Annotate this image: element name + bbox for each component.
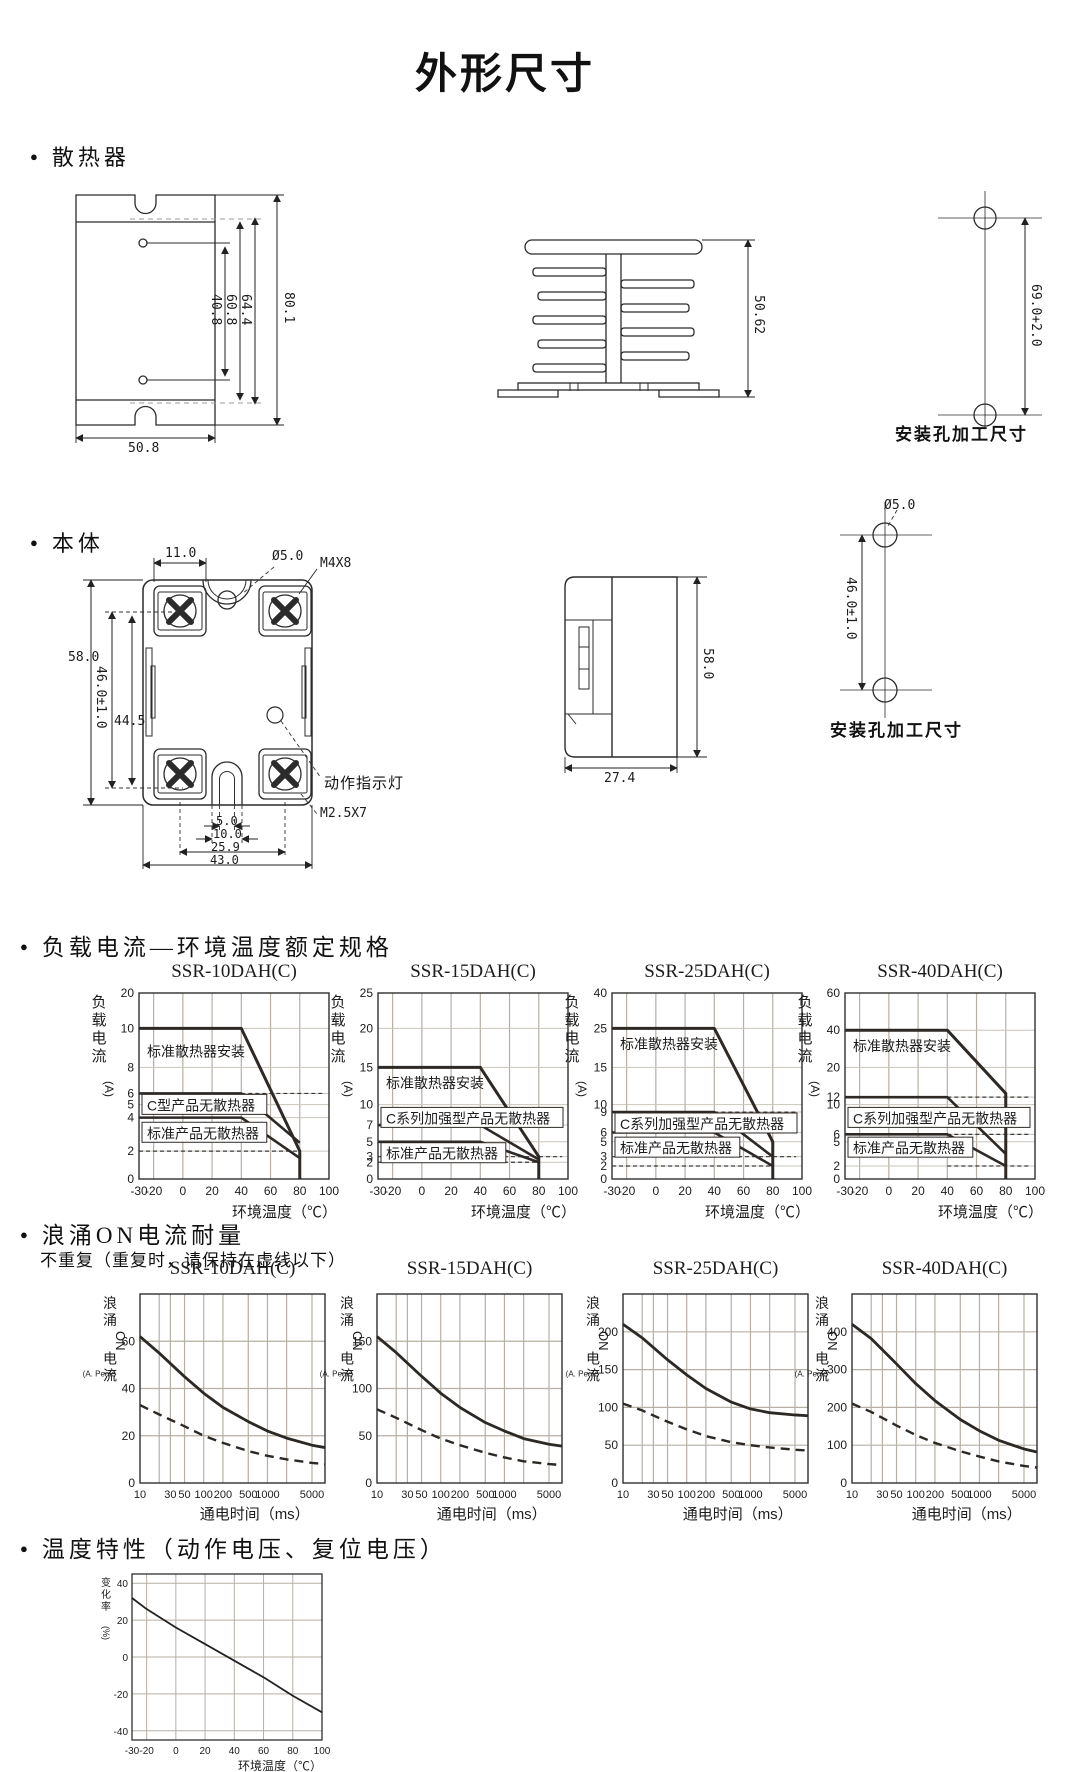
svg-text:SSR-10DAH(C): SSR-10DAH(C) xyxy=(170,1258,296,1279)
dim-body-height: 58.0 xyxy=(68,650,99,665)
svg-text:C系列加强型产品无散热器: C系列加强型产品无散热器 xyxy=(620,1116,784,1132)
svg-text:(A. Peak): (A. Peak) xyxy=(320,1369,354,1378)
svg-text:2: 2 xyxy=(833,1159,840,1173)
svg-text:电: 电 xyxy=(564,1030,579,1047)
svg-text:(A): (A) xyxy=(341,1081,355,1097)
dim-heatsink-hole-pitch: 40.8 xyxy=(208,294,223,325)
svg-text:200: 200 xyxy=(451,1489,469,1501)
svg-text:通电时间（ms）: 通电时间（ms） xyxy=(200,1506,310,1523)
svg-text:0: 0 xyxy=(173,1746,179,1757)
svg-text:50: 50 xyxy=(415,1489,427,1501)
svg-text:-30: -30 xyxy=(125,1746,140,1757)
body-mounting-caption: 安装孔加工尺寸 xyxy=(830,716,963,741)
dim-body-side-depth: 27.4 xyxy=(604,771,635,786)
temp-characteristic-chart: 40200-20-40-30-20020406080100环境温度（℃）变化率(… xyxy=(92,1556,392,1772)
svg-text:60: 60 xyxy=(970,1184,984,1198)
svg-text:标准产品无散热器: 标准产品无散热器 xyxy=(147,1125,259,1141)
svg-text:50: 50 xyxy=(359,1429,373,1443)
dim-body-width: 43.0 xyxy=(210,853,239,867)
svg-text:(A. Peak): (A. Peak) xyxy=(795,1369,829,1378)
svg-text:化: 化 xyxy=(101,1588,111,1601)
svg-text:标准产品无散热器: 标准产品无散热器 xyxy=(386,1146,498,1162)
svg-text:标准散热器安装: 标准散热器安装 xyxy=(147,1043,245,1059)
svg-text:100: 100 xyxy=(598,1400,618,1414)
svg-text:ON: ON xyxy=(825,1331,840,1351)
dim-heatsink-total-h: 80.1 xyxy=(281,292,296,323)
svg-text:通电时间（ms）: 通电时间（ms） xyxy=(683,1506,793,1523)
svg-text:(A): (A) xyxy=(808,1081,822,1097)
svg-text:0: 0 xyxy=(365,1476,372,1490)
dim-bodymount-hole: Ø5.0 xyxy=(884,498,915,513)
load-chart-ssr-40dah: SSR-40DAH(C)标准散热器安装C系列加强型产品无散热器标准产品无散热器6… xyxy=(775,955,1075,1228)
dim-body-screw-pitch: 25.9 xyxy=(211,840,240,854)
svg-text:-20: -20 xyxy=(618,1184,636,1198)
page-title: 外形尺寸 xyxy=(0,40,1010,101)
svg-text:SSR-15DAH(C): SSR-15DAH(C) xyxy=(407,1258,533,1279)
svg-text:20: 20 xyxy=(827,1060,841,1074)
svg-text:载: 载 xyxy=(330,1012,345,1029)
dim-heatsink-mid-h: 64.4 xyxy=(238,294,253,325)
svg-text:50: 50 xyxy=(661,1489,673,1501)
dim-body-inner-h: 44.5 xyxy=(114,714,145,729)
bullet-icon: ● xyxy=(20,1541,28,1556)
svg-text:电: 电 xyxy=(340,1350,354,1366)
svg-text:10: 10 xyxy=(827,1098,841,1112)
svg-text:电: 电 xyxy=(91,1030,106,1047)
svg-text:40: 40 xyxy=(827,1023,841,1037)
svg-text:浪: 浪 xyxy=(103,1295,117,1311)
heatsink-profile-drawing xyxy=(470,180,790,415)
svg-text:15: 15 xyxy=(594,1060,608,1074)
svg-text:-40: -40 xyxy=(114,1727,129,1738)
svg-text:流: 流 xyxy=(91,1048,106,1065)
svg-text:40: 40 xyxy=(474,1184,488,1198)
svg-text:60: 60 xyxy=(737,1184,751,1198)
svg-text:100: 100 xyxy=(314,1746,331,1757)
svg-text:环境温度（℃）: 环境温度（℃） xyxy=(238,1758,322,1772)
svg-text:标准散热器安装: 标准散热器安装 xyxy=(386,1075,484,1091)
dim-heatsink-profile-height: 50.62 xyxy=(751,295,766,334)
svg-text:变: 变 xyxy=(101,1576,111,1589)
svg-text:SSR-10DAH(C): SSR-10DAH(C) xyxy=(171,961,297,982)
svg-text:(A): (A) xyxy=(575,1081,589,1097)
svg-text:涌: 涌 xyxy=(340,1312,354,1328)
svg-text:-20: -20 xyxy=(851,1184,869,1198)
svg-text:40: 40 xyxy=(122,1382,136,1396)
dim-heatsink-mount-pitch: 69.0+2.0 xyxy=(1028,284,1043,347)
svg-text:50: 50 xyxy=(605,1438,619,1452)
svg-text:20: 20 xyxy=(444,1184,458,1198)
bullet-icon: ● xyxy=(20,1227,28,1242)
svg-text:标准产品无散热器: 标准产品无散热器 xyxy=(853,1140,965,1156)
dim-body-top-w: 11.0 xyxy=(165,546,196,561)
svg-text:8: 8 xyxy=(127,1060,134,1074)
svg-text:C系列加强型产品无散热器: C系列加强型产品无散热器 xyxy=(853,1110,1017,1126)
svg-text:60: 60 xyxy=(258,1746,270,1757)
svg-text:10: 10 xyxy=(134,1489,146,1501)
svg-text:标准产品无散热器: 标准产品无散热器 xyxy=(620,1140,732,1156)
svg-text:30: 30 xyxy=(164,1489,176,1501)
svg-text:ON: ON xyxy=(350,1331,365,1351)
svg-text:5: 5 xyxy=(127,1098,134,1112)
svg-text:10: 10 xyxy=(121,1021,135,1035)
svg-text:50: 50 xyxy=(178,1489,190,1501)
svg-text:-20: -20 xyxy=(114,1690,129,1701)
body-led-label: 动作指示灯 xyxy=(324,772,404,793)
svg-text:1000: 1000 xyxy=(738,1489,762,1501)
svg-text:0: 0 xyxy=(122,1653,128,1664)
svg-text:40: 40 xyxy=(117,1579,129,1590)
dim-bodymount-pitch: 46.0±1.0 xyxy=(843,577,858,640)
svg-text:-20: -20 xyxy=(384,1184,402,1198)
svg-text:流: 流 xyxy=(797,1048,812,1065)
svg-text:SSR-40DAH(C): SSR-40DAH(C) xyxy=(877,961,1003,982)
svg-text:40: 40 xyxy=(594,986,608,1000)
svg-text:5: 5 xyxy=(833,1135,840,1149)
svg-text:标准散热器安装: 标准散热器安装 xyxy=(620,1036,718,1052)
dim-body-slot-inner-w: 5.0 xyxy=(216,814,238,828)
svg-text:负: 负 xyxy=(330,994,345,1011)
svg-text:50: 50 xyxy=(890,1489,902,1501)
svg-text:10: 10 xyxy=(360,1098,374,1112)
svg-text:SSR-15DAH(C): SSR-15DAH(C) xyxy=(410,961,536,982)
svg-text:150: 150 xyxy=(598,1363,618,1377)
svg-text:80: 80 xyxy=(293,1184,307,1198)
svg-text:10: 10 xyxy=(371,1489,383,1501)
svg-text:60: 60 xyxy=(503,1184,517,1198)
dim-heatsink-width: 50.8 xyxy=(128,441,159,456)
svg-text:0: 0 xyxy=(180,1184,187,1198)
svg-text:浪: 浪 xyxy=(586,1295,600,1311)
svg-text:2: 2 xyxy=(600,1159,607,1173)
svg-text:1000: 1000 xyxy=(255,1489,279,1501)
svg-text:通电时间（ms）: 通电时间（ms） xyxy=(437,1506,547,1523)
svg-text:SSR-40DAH(C): SSR-40DAH(C) xyxy=(882,1258,1008,1279)
svg-text:浪: 浪 xyxy=(815,1295,829,1311)
svg-text:0: 0 xyxy=(611,1476,618,1490)
svg-text:载: 载 xyxy=(91,1012,106,1029)
svg-text:涌: 涌 xyxy=(103,1312,117,1328)
svg-text:涌: 涌 xyxy=(815,1312,829,1328)
svg-text:2: 2 xyxy=(366,1155,373,1169)
dim-heatsink-inner-h: 60.8 xyxy=(223,294,238,325)
surge-chart-ssr-40dah: SSR-40DAH(C)4003002001000103050100200500… xyxy=(782,1254,1080,1529)
svg-text:负: 负 xyxy=(564,994,579,1011)
svg-text:0: 0 xyxy=(419,1184,426,1198)
dim-body-screw-bottom: M2.5X7 xyxy=(320,806,367,821)
svg-text:(%): (%) xyxy=(101,1626,111,1640)
svg-text:标准散热器安装: 标准散热器安装 xyxy=(853,1038,951,1054)
dim-body-screw-top: M4X8 xyxy=(320,556,351,571)
svg-text:100: 100 xyxy=(352,1382,372,1396)
svg-text:200: 200 xyxy=(926,1489,944,1501)
svg-text:载: 载 xyxy=(797,1012,812,1029)
svg-text:20: 20 xyxy=(121,986,135,1000)
svg-text:0: 0 xyxy=(128,1476,135,1490)
dim-body-side-height: 58.0 xyxy=(700,648,715,679)
svg-text:(A): (A) xyxy=(102,1081,116,1097)
svg-text:20: 20 xyxy=(360,1021,374,1035)
svg-text:40: 40 xyxy=(229,1746,241,1757)
heatsink-mounting-caption: 安装孔加工尺寸 xyxy=(895,420,1028,445)
svg-text:20: 20 xyxy=(200,1746,212,1757)
dim-body-slot-w: 10.0 xyxy=(213,827,242,841)
svg-text:20: 20 xyxy=(678,1184,692,1198)
bullet-icon: ● xyxy=(30,149,38,164)
svg-text:30: 30 xyxy=(647,1489,659,1501)
svg-text:20: 20 xyxy=(122,1429,136,1443)
svg-text:ON: ON xyxy=(113,1331,128,1351)
svg-text:30: 30 xyxy=(876,1489,888,1501)
svg-text:率: 率 xyxy=(101,1600,111,1613)
svg-text:5000: 5000 xyxy=(1012,1489,1036,1501)
svg-text:40: 40 xyxy=(708,1184,722,1198)
svg-text:SSR-25DAH(C): SSR-25DAH(C) xyxy=(644,961,770,982)
svg-text:C型产品无散热器: C型产品无散热器 xyxy=(147,1097,255,1113)
svg-text:C系列加强型产品无散热器: C系列加强型产品无散热器 xyxy=(386,1110,550,1126)
svg-text:10: 10 xyxy=(846,1489,858,1501)
svg-text:电: 电 xyxy=(330,1030,345,1047)
svg-text:环境温度（℃）: 环境温度（℃） xyxy=(938,1203,1043,1221)
datasheet-page: 外形尺寸 ●散热器 xyxy=(0,0,1080,1772)
svg-text:25: 25 xyxy=(594,1021,608,1035)
svg-text:20: 20 xyxy=(205,1184,219,1198)
svg-text:100: 100 xyxy=(907,1489,925,1501)
surge-title-text: 浪涌ON电流耐量 xyxy=(42,1223,245,1248)
svg-text:0: 0 xyxy=(653,1184,660,1198)
svg-text:电: 电 xyxy=(103,1350,117,1366)
svg-text:100: 100 xyxy=(678,1489,696,1501)
svg-text:200: 200 xyxy=(697,1489,715,1501)
svg-text:200: 200 xyxy=(827,1400,847,1414)
svg-text:100: 100 xyxy=(195,1489,213,1501)
svg-text:SSR-25DAH(C): SSR-25DAH(C) xyxy=(653,1258,779,1279)
svg-text:1000: 1000 xyxy=(492,1489,516,1501)
svg-text:1000: 1000 xyxy=(967,1489,991,1501)
dim-body-mount-pitch: 46.0±1.0 xyxy=(93,666,108,729)
body-side-drawing xyxy=(535,470,765,790)
svg-text:40: 40 xyxy=(941,1184,955,1198)
svg-text:80: 80 xyxy=(287,1746,299,1757)
section-title-surge: ●浪涌ON电流耐量 xyxy=(20,1216,245,1250)
svg-text:2: 2 xyxy=(127,1144,134,1158)
bullet-icon: ● xyxy=(30,535,38,550)
svg-text:5: 5 xyxy=(366,1135,373,1149)
svg-text:载: 载 xyxy=(564,1012,579,1029)
svg-text:0: 0 xyxy=(886,1184,893,1198)
bullet-icon: ● xyxy=(20,939,28,954)
svg-text:流: 流 xyxy=(564,1048,579,1065)
svg-text:10: 10 xyxy=(617,1489,629,1501)
svg-text:7: 7 xyxy=(366,1118,373,1132)
svg-text:100: 100 xyxy=(1025,1184,1045,1198)
svg-text:(A. Peak): (A. Peak) xyxy=(83,1369,117,1378)
svg-text:-20: -20 xyxy=(145,1184,163,1198)
svg-text:300: 300 xyxy=(827,1363,847,1377)
svg-text:100: 100 xyxy=(432,1489,450,1501)
svg-text:9: 9 xyxy=(600,1105,607,1119)
heatsink-mounting-drawing xyxy=(880,165,1080,445)
svg-text:5: 5 xyxy=(600,1135,607,1149)
svg-text:负: 负 xyxy=(797,994,812,1011)
svg-text:100: 100 xyxy=(827,1438,847,1452)
svg-text:流: 流 xyxy=(330,1048,345,1065)
svg-text:浪: 浪 xyxy=(340,1295,354,1311)
svg-text:0: 0 xyxy=(840,1476,847,1490)
svg-text:4: 4 xyxy=(127,1111,134,1125)
svg-text:60: 60 xyxy=(827,986,841,1000)
svg-text:涌: 涌 xyxy=(586,1312,600,1328)
dim-body-hole: Ø5.0 xyxy=(272,549,303,564)
svg-text:15: 15 xyxy=(360,1060,374,1074)
svg-text:20: 20 xyxy=(911,1184,925,1198)
svg-text:负: 负 xyxy=(91,994,106,1011)
svg-text:60: 60 xyxy=(264,1184,278,1198)
svg-text:200: 200 xyxy=(214,1489,232,1501)
svg-text:20: 20 xyxy=(117,1616,129,1627)
svg-text:ON: ON xyxy=(596,1331,611,1351)
svg-text:电: 电 xyxy=(586,1350,600,1366)
svg-text:80: 80 xyxy=(999,1184,1013,1198)
svg-text:30: 30 xyxy=(401,1489,413,1501)
svg-text:电: 电 xyxy=(797,1030,812,1047)
svg-text:(A. Peak): (A. Peak) xyxy=(566,1369,600,1378)
svg-text:25: 25 xyxy=(360,986,374,1000)
svg-text:电: 电 xyxy=(815,1350,829,1366)
svg-text:-20: -20 xyxy=(139,1746,154,1757)
svg-text:通电时间（ms）: 通电时间（ms） xyxy=(912,1506,1022,1523)
svg-text:40: 40 xyxy=(235,1184,249,1198)
